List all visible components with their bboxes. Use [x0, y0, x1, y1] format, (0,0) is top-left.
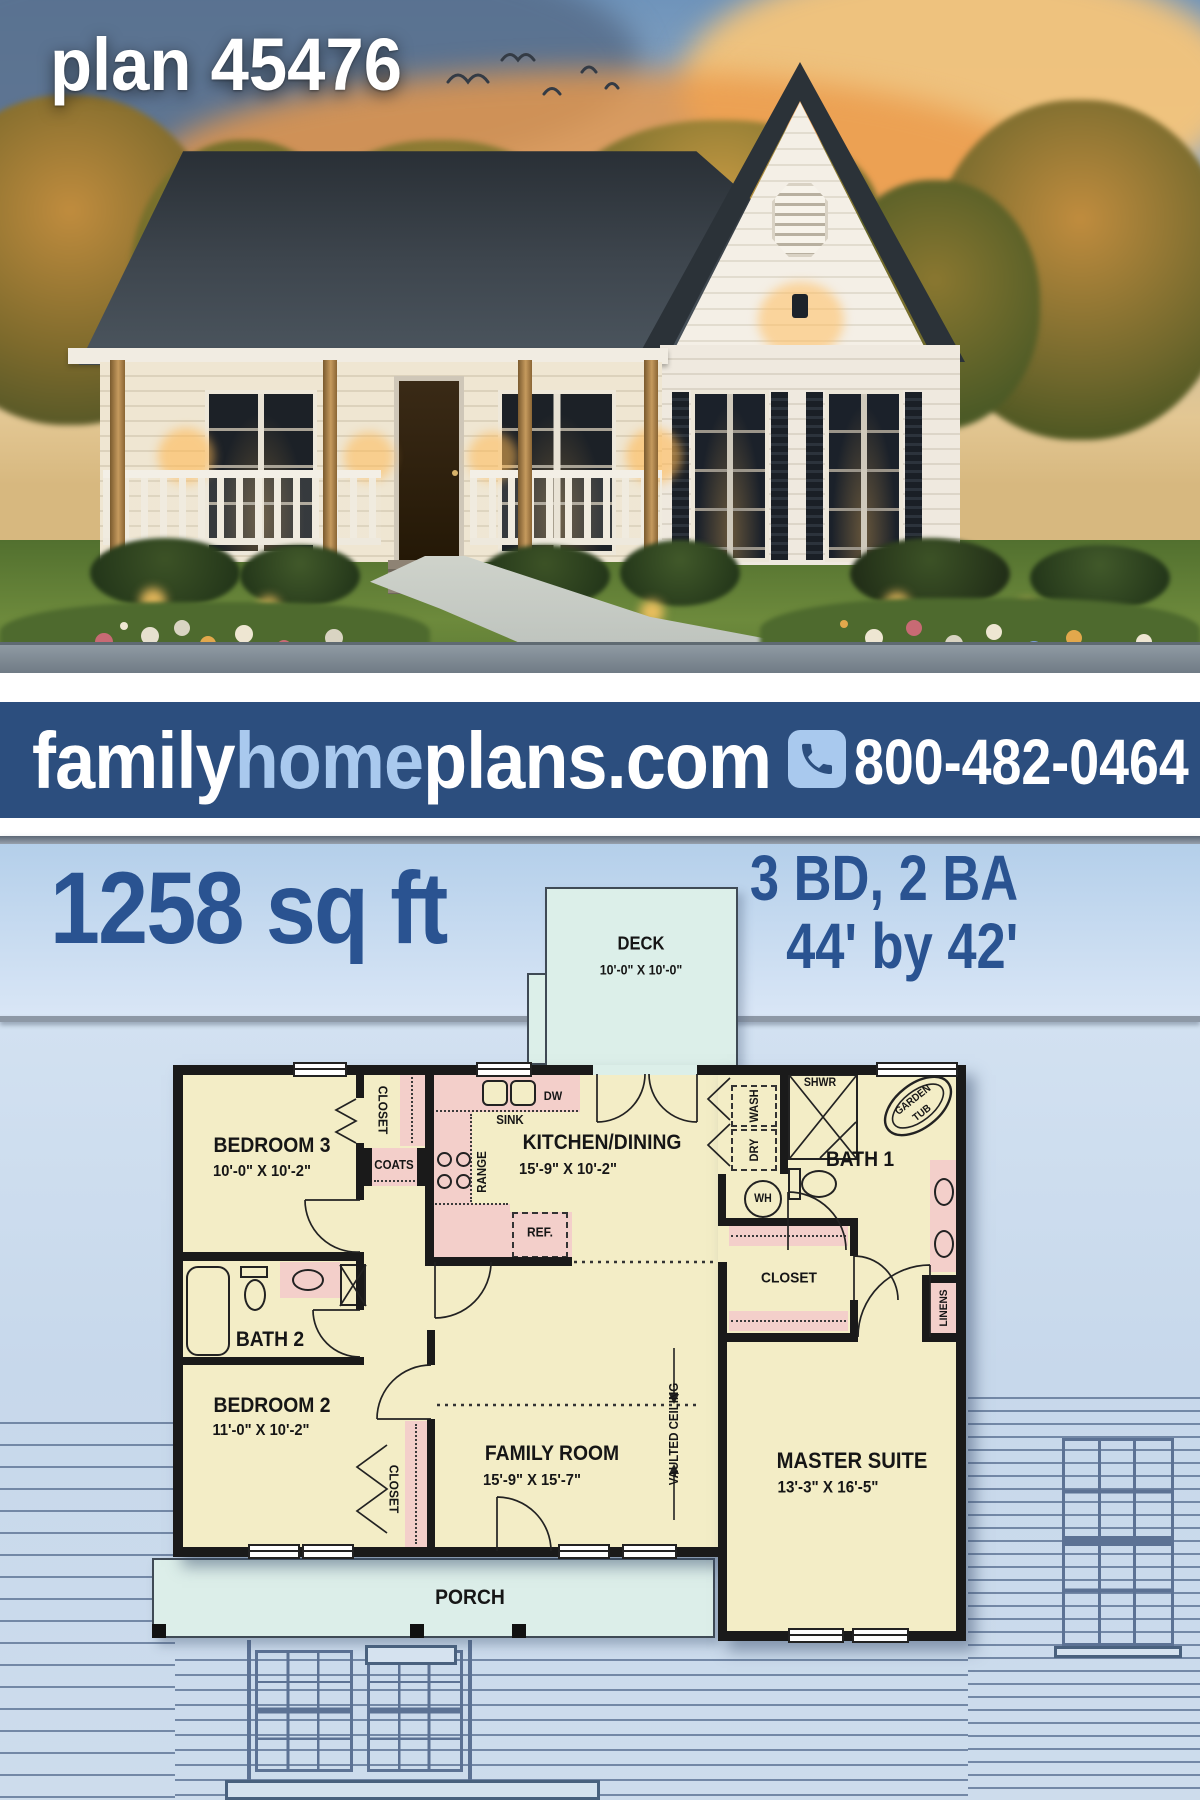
wall: [780, 1074, 788, 1174]
wall: [425, 1074, 434, 1150]
square-footage: 1258 sq ft: [50, 850, 446, 967]
flowers-right: [840, 620, 848, 628]
wall: [425, 1257, 572, 1266]
room-dims-kitchen: 15'-9" X 10'-2": [519, 1161, 617, 1179]
deck-step: [527, 973, 547, 1065]
wall: [427, 1330, 435, 1365]
siding-left: [0, 1402, 175, 1800]
room-label-bedroom3: BEDROOM 3: [213, 1134, 330, 1158]
range-burner: [456, 1174, 471, 1189]
label-shwr: SHWR: [802, 1077, 838, 1089]
window: [293, 1062, 347, 1077]
site-banner: familyhomeplans.com 800-482-0464: [0, 702, 1200, 818]
range-burner: [456, 1152, 471, 1167]
wall: [850, 1226, 858, 1256]
plan-number-overlay: plan 45476: [50, 22, 402, 107]
wall: [173, 1357, 364, 1365]
window: [476, 1062, 532, 1077]
closet-rod-line: [411, 1077, 413, 1143]
range-burner: [437, 1174, 452, 1189]
phone-number: 800-482-0464: [854, 725, 1189, 799]
wall: [922, 1283, 930, 1342]
sidewalk: [0, 642, 1200, 673]
bed-bath-count: 3 BD, 2 BA: [750, 844, 1018, 912]
toilet-tank-bath2: [240, 1266, 268, 1278]
coats-line: [374, 1180, 415, 1182]
room-label-bath2: BATH 2: [236, 1328, 304, 1352]
label-dry: DRY: [747, 1139, 761, 1162]
porch-post-plan: [410, 1624, 424, 1638]
toilet-bowl-bath2: [244, 1279, 266, 1311]
site-name: familyhomeplans.com: [32, 715, 771, 807]
room-dims-bedroom3: 10'-0" X 10'-2": [213, 1163, 311, 1181]
closet-rod-line: [415, 1424, 417, 1544]
shutter-icon: [672, 392, 689, 560]
room-label-bath1: BATH 1: [826, 1148, 894, 1172]
shutter-icon: [905, 392, 922, 560]
wall: [173, 1252, 364, 1261]
shelf-line: [731, 1235, 846, 1237]
gable-window-1: [691, 390, 769, 562]
room-dims-deck: 10'-0" X 10'-0": [600, 963, 683, 978]
window: [852, 1628, 909, 1643]
wall: [364, 1148, 372, 1186]
brand-family: family: [32, 716, 235, 805]
wall: [425, 1150, 434, 1266]
phone-icon: [788, 730, 846, 788]
deck-door-opening: [593, 1065, 697, 1075]
toilet-bowl-bath1: [801, 1170, 837, 1198]
counter-edge: [470, 1114, 472, 1202]
wall: [718, 1262, 727, 1333]
wall: [718, 1333, 858, 1342]
wall: [173, 1065, 966, 1075]
wall: [718, 1341, 727, 1640]
room-label-bedroom2: BEDROOM 2: [213, 1394, 330, 1418]
counter-edge: [432, 1203, 508, 1205]
vanity-sink: [934, 1230, 954, 1258]
gable-window-2: [825, 390, 903, 562]
sink-bowl: [510, 1080, 536, 1106]
divider-line: [0, 836, 1200, 844]
wall: [417, 1148, 425, 1186]
room-dims-master: 13'-3" X 16'-5": [778, 1479, 879, 1498]
shutter-icon: [771, 392, 788, 560]
brand-plans: plans.com: [423, 716, 771, 805]
room-label-master: MASTER SUITE: [777, 1448, 928, 1474]
elevation-post: [468, 1640, 472, 1780]
label-closet-master: CLOSET: [761, 1270, 817, 1287]
window: [302, 1544, 354, 1559]
front-steps: [225, 1780, 600, 1800]
wall: [173, 1065, 183, 1557]
window: [876, 1062, 958, 1077]
footprint-size: 44' by 42': [750, 912, 1018, 980]
elevation-window-sill: [1054, 1646, 1182, 1658]
label-ref: REF.: [527, 1225, 553, 1240]
porch-railing-left: [103, 470, 381, 545]
birds-icon: [440, 42, 630, 132]
label-closet-bedroom2: CLOSET: [387, 1465, 402, 1514]
room-label-porch: PORCH: [435, 1586, 505, 1610]
porch-railing-right: [470, 470, 662, 545]
elevation-window: [367, 1650, 463, 1772]
sink-bowl: [482, 1080, 508, 1106]
kitchen-counter-low: [430, 1204, 510, 1262]
wall: [356, 1143, 364, 1200]
room-dims-bedroom2: 11'-0" X 10'-2": [212, 1422, 309, 1440]
vanity-sink: [292, 1269, 324, 1291]
window: [622, 1544, 677, 1559]
label-dw: DW: [544, 1089, 562, 1103]
elevation-post: [247, 1640, 251, 1780]
label-wh: WH: [754, 1193, 772, 1205]
room-label-deck: DECK: [618, 934, 665, 955]
brand-home: home: [235, 716, 423, 805]
label-linens: LINENS: [938, 1289, 950, 1326]
room-dims-family: 15'-9" X 15'-7": [483, 1472, 581, 1490]
gable-lamp: [792, 294, 808, 318]
gable-vent: [772, 183, 828, 257]
pin-image: plan 45476 familyhomeplans.com 800-482-0…: [0, 0, 1200, 1800]
elevation-window: [255, 1650, 353, 1772]
porch-post: [110, 360, 125, 562]
window: [248, 1544, 300, 1559]
toilet-tank-bath1: [788, 1168, 801, 1200]
room-label-kitchen: KITCHEN/DINING: [523, 1131, 682, 1155]
label-wash: WASH: [747, 1089, 761, 1122]
vanity-sink: [934, 1178, 954, 1206]
wall: [930, 1333, 966, 1342]
porch-area: [152, 1558, 715, 1638]
wall: [718, 1218, 858, 1226]
porch-post: [644, 360, 658, 562]
door-knob-icon: [452, 470, 458, 476]
wall: [922, 1275, 966, 1283]
room-label-family: FAMILY ROOM: [485, 1442, 619, 1466]
wall: [956, 1065, 966, 1641]
shelf-line: [731, 1320, 846, 1322]
label-coats: COATS: [374, 1158, 413, 1172]
porch-post: [518, 360, 532, 560]
porch-post-plan: [512, 1624, 526, 1638]
shutter-icon: [806, 392, 823, 560]
counter-edge: [432, 1110, 578, 1112]
elevation-window: [1062, 1438, 1174, 1646]
range-burner: [437, 1152, 452, 1167]
hero-photo: plan 45476: [0, 0, 1200, 673]
porch-step: [365, 1645, 457, 1665]
label-closet-bedroom3: CLOSET: [376, 1086, 391, 1135]
label-range: RANGE: [475, 1151, 489, 1193]
wall: [356, 1074, 364, 1098]
label-sink: SINK: [496, 1113, 523, 1127]
hedge: [620, 540, 740, 606]
wall: [427, 1419, 435, 1556]
porch-post: [323, 360, 337, 560]
bathtub-bath2: [186, 1266, 230, 1356]
flowers-left: [120, 622, 128, 630]
label-vaulted-ceiling: VAULTED CEILING: [667, 1383, 681, 1485]
hedge: [240, 545, 360, 607]
window: [558, 1544, 610, 1559]
wall: [718, 1174, 726, 1226]
window: [788, 1628, 844, 1643]
bed-bath-size: 3 BD, 2 BA 44' by 42': [750, 844, 1018, 980]
porch-post-plan: [152, 1624, 166, 1638]
